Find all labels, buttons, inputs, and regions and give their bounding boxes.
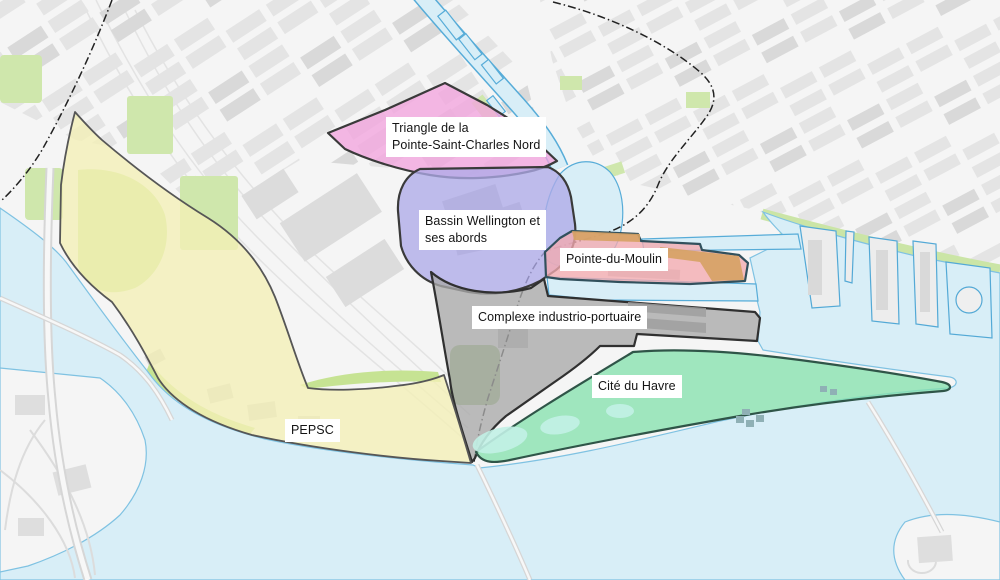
label-complexe-industrio-portuaire: Complexe industrio-portuaire <box>472 306 647 329</box>
map-canvas <box>0 0 1000 580</box>
label-triangle-psc-nord: Triangle de la Pointe-Saint-Charles Nord <box>386 117 546 157</box>
label-bassin-wellington: Bassin Wellington et ses abords <box>419 210 546 250</box>
label-pointe-du-moulin: Pointe-du-Moulin <box>560 248 668 271</box>
label-cite-du-havre: Cité du Havre <box>592 375 682 398</box>
label-pepsc: PEPSC <box>285 419 340 442</box>
planning-sectors-map: Triangle de la Pointe-Saint-Charles Nord… <box>0 0 1000 580</box>
